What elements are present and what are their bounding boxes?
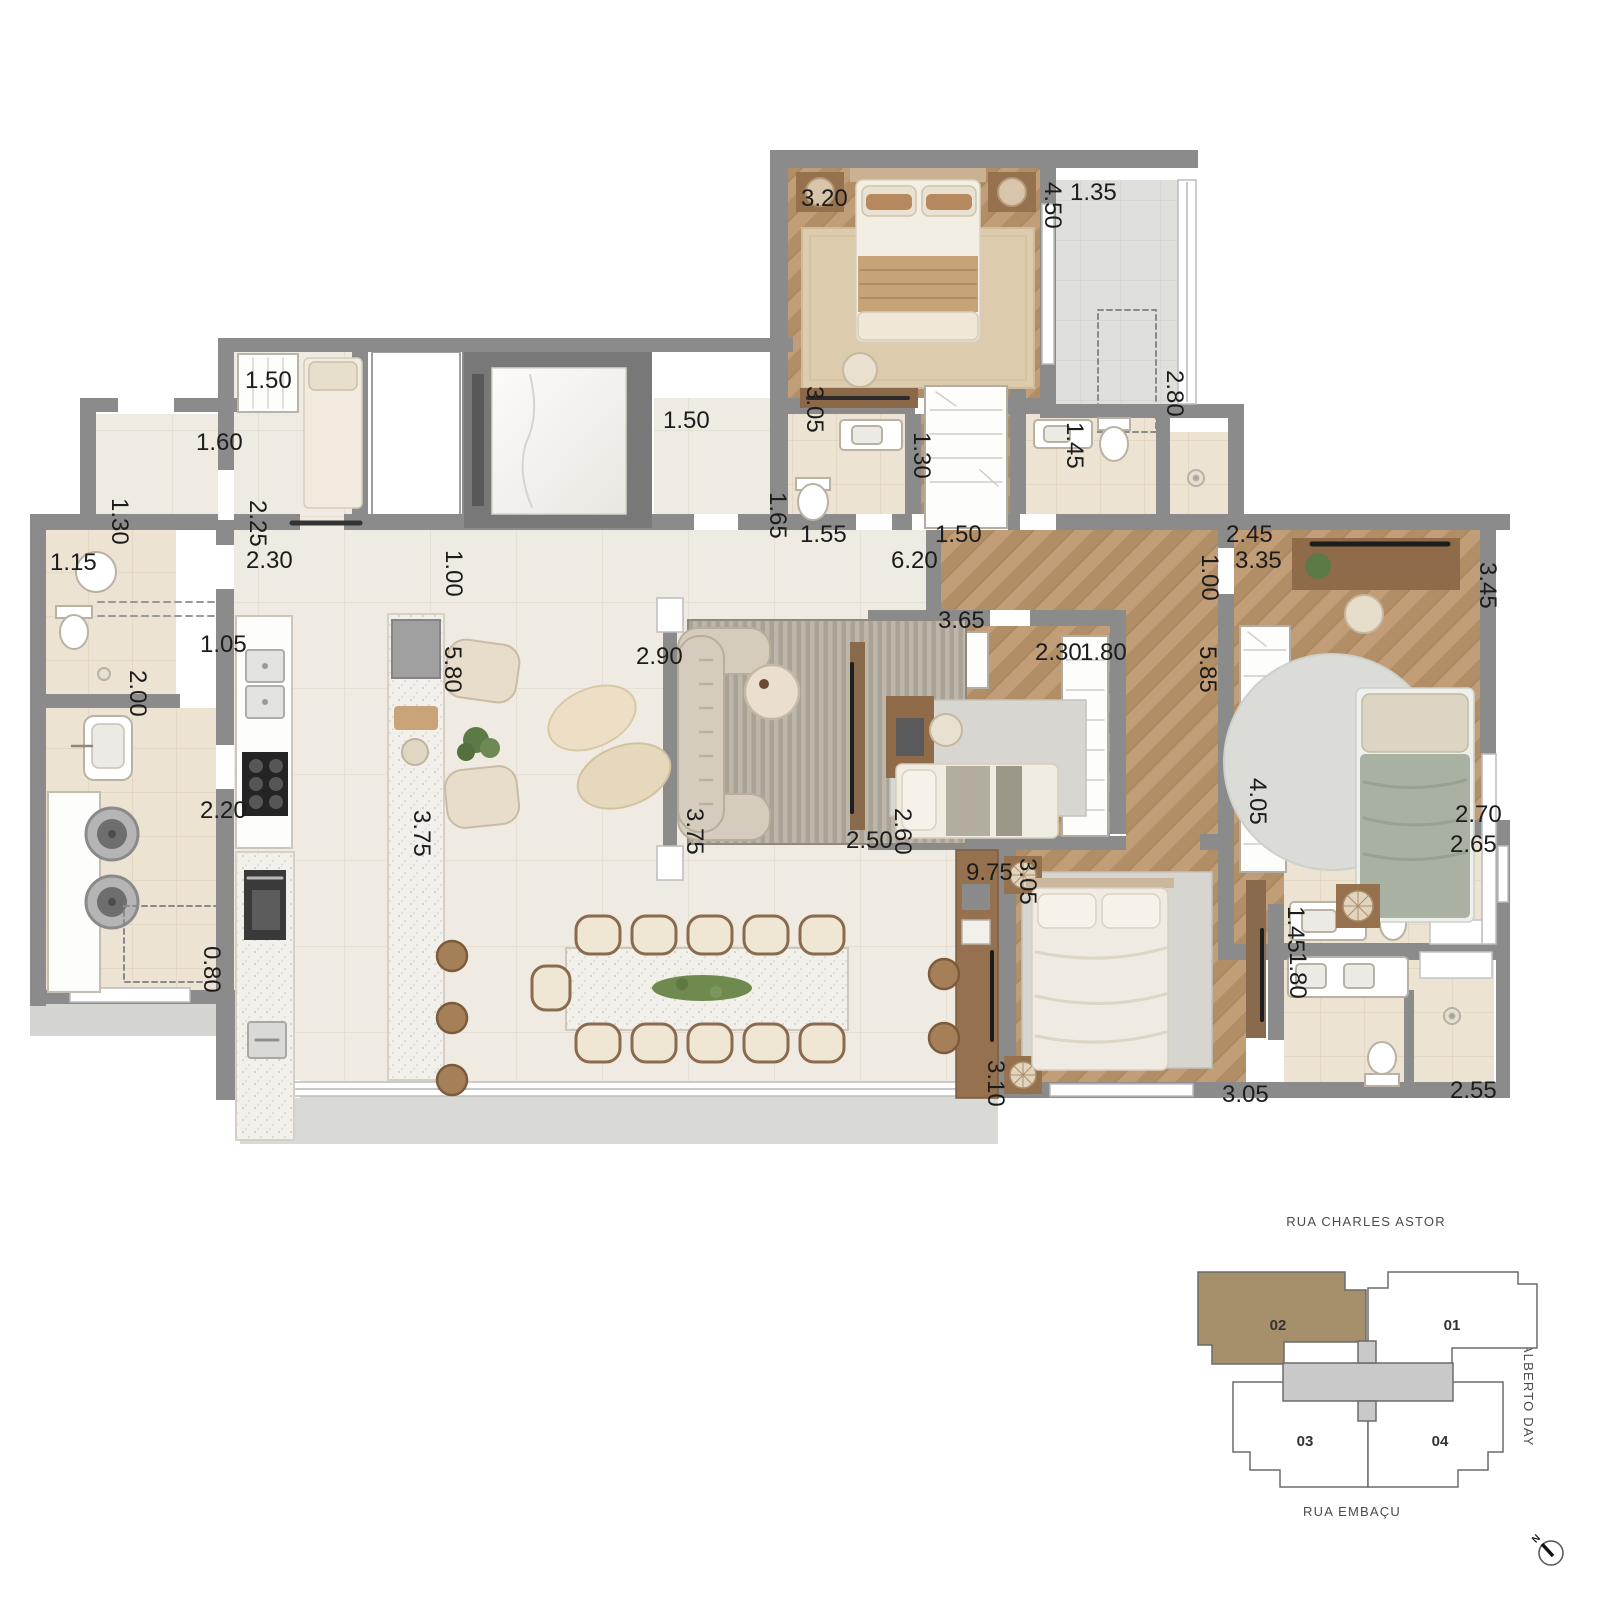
key-plan-unit-04-label: 04	[1432, 1433, 1449, 1450]
dimension-label: 2.20	[200, 797, 247, 824]
service-ledge	[30, 1002, 216, 1036]
dimension-label: 3.05	[1014, 858, 1041, 905]
key-plan-core-stub	[1358, 1341, 1376, 1363]
dimension-label: 3.75	[681, 808, 708, 855]
key-plan: RUA CHARLES ASTOR RUA ALBERTO DAY RUA EM…	[1198, 1214, 1563, 1565]
dimension-label: 1.35	[1070, 179, 1117, 206]
dimension-label: 1.00	[440, 550, 467, 597]
dimension-label: 4.50	[1039, 182, 1066, 229]
compass-icon: N	[1530, 1533, 1563, 1565]
dimension-label: 1.30	[106, 498, 133, 545]
street-label-top: RUA CHARLES ASTOR	[1286, 1214, 1446, 1229]
dimension-label: 1.60	[196, 429, 243, 456]
key-plan-unit-03-label: 03	[1297, 1433, 1314, 1450]
dimension-label: 5.80	[439, 646, 466, 693]
dimension-label: 3.75	[408, 810, 435, 857]
dimension-label: 2.80	[1161, 370, 1188, 417]
dimension-label: 1.50	[663, 407, 710, 434]
dimension-label: 2.60	[889, 808, 916, 855]
dimension-label: 2.30	[246, 547, 293, 574]
dimension-label: 2.45	[1226, 521, 1273, 548]
street-label-bottom: RUA EMBAÇU	[1303, 1504, 1401, 1519]
key-plan-core	[1283, 1363, 1453, 1401]
dimension-label: 2.25	[244, 500, 271, 547]
dimension-label: 3.05	[1222, 1081, 1269, 1108]
terrace-slab	[240, 1096, 998, 1144]
key-plan-core-stub	[1358, 1401, 1376, 1421]
dimension-label: 1.15	[50, 549, 97, 576]
room-balcony-floor	[1056, 180, 1178, 404]
dimension-label: 3.05	[801, 386, 828, 433]
dimension-label: 1.50	[245, 367, 292, 394]
compass-north-label: N	[1530, 1533, 1543, 1546]
elevator	[464, 352, 652, 528]
dimension-label: 3.20	[801, 185, 848, 212]
dimension-label: 1.30	[908, 432, 935, 479]
dimension-label: 2.30	[1035, 639, 1082, 666]
shaft-void	[372, 352, 460, 516]
dimension-label: 2.90	[636, 643, 683, 670]
dimension-label: 2.55	[1450, 1077, 1497, 1104]
dimension-label: 1.80	[1080, 639, 1127, 666]
dimension-label: 3.10	[982, 1060, 1009, 1107]
key-plan-unit-01-label: 01	[1444, 1317, 1461, 1334]
floor-plan-image: 3.204.501.352.803.051.301.451.551.502.45…	[0, 0, 1600, 1600]
dimension-label: 5.85	[1194, 646, 1221, 693]
dimension-label: 1.00	[1196, 554, 1223, 601]
dimension-label: 3.65	[938, 607, 985, 634]
entry-door-opening	[118, 398, 174, 412]
dimension-label: 1.55	[800, 521, 847, 548]
dimension-label: 6.20	[891, 547, 938, 574]
dimension-label: 1.80	[1284, 952, 1311, 999]
dimension-label: 2.65	[1450, 831, 1497, 858]
dimension-label: 2.00	[124, 670, 151, 717]
dimension-label: 1.65	[764, 492, 791, 539]
dimension-label: 1.45	[1282, 906, 1309, 953]
dimension-label: 1.45	[1061, 422, 1088, 469]
dimension-label: 2.70	[1455, 801, 1502, 828]
furniture	[48, 168, 1474, 1140]
dimension-label: 0.80	[198, 946, 225, 993]
dimension-label: 3.45	[1474, 562, 1501, 609]
dimension-label: 1.05	[200, 631, 247, 658]
dimension-label: 4.05	[1244, 778, 1271, 825]
dimension-label: 9.75	[966, 859, 1013, 886]
dimension-label: 3.35	[1235, 547, 1282, 574]
key-plan-unit-02-label: 02	[1270, 1317, 1287, 1334]
dimension-label: 1.50	[935, 521, 982, 548]
dimension-label: 2.50	[846, 827, 893, 854]
